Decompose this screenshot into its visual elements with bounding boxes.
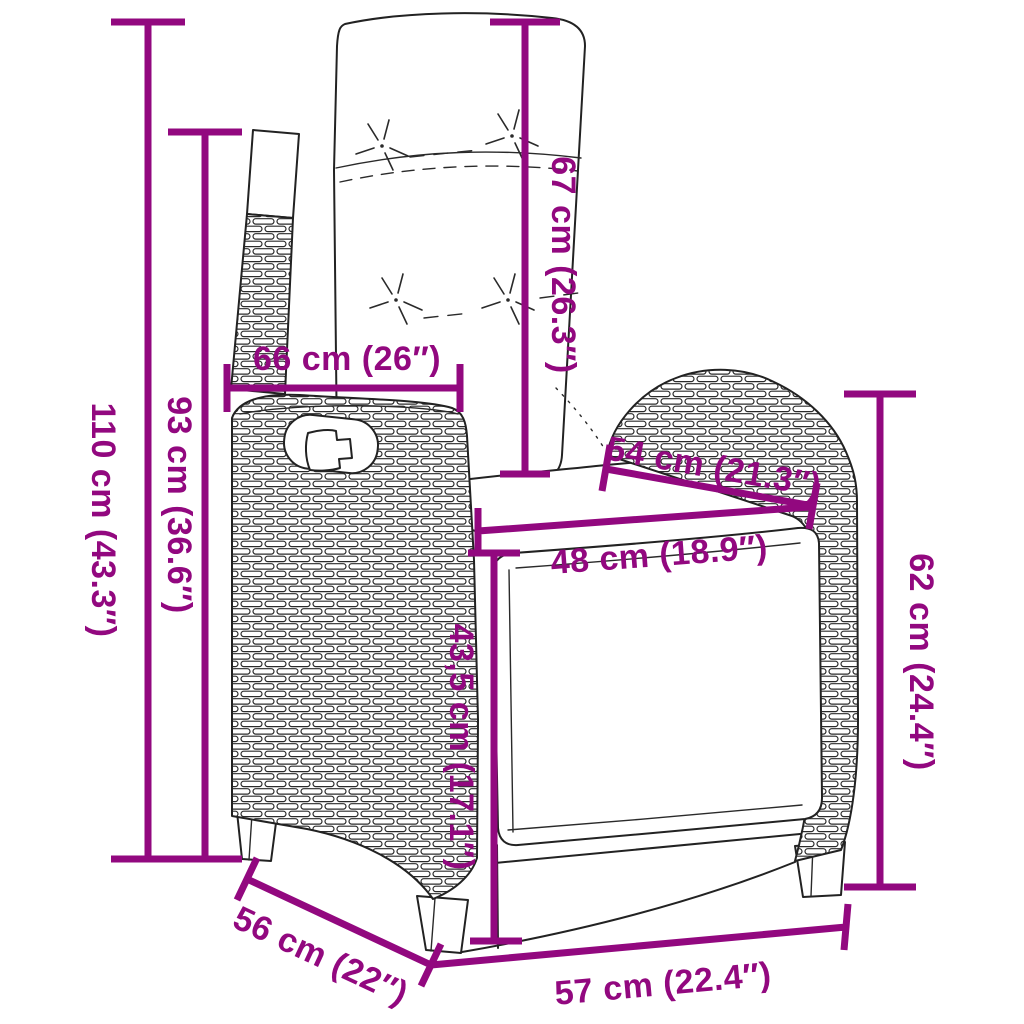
dim-backrest-height: 93 cm (36.6″) bbox=[160, 132, 242, 859]
dim-total-height-label: 110 cm (43.3″) bbox=[84, 403, 122, 638]
dim-side-height-label: 62 cm (24.4″) bbox=[902, 553, 940, 770]
dim-seat-depth: 56 cm (22″) bbox=[227, 858, 441, 1013]
footrest bbox=[462, 528, 822, 952]
dim-backrest-height-label: 93 cm (36.6″) bbox=[160, 396, 198, 613]
dim-front-width-label: 57 cm (22.4″) bbox=[553, 955, 773, 1013]
dim-backrest-width-label: 66 cm (26″) bbox=[253, 340, 441, 378]
front-left-leg bbox=[417, 896, 468, 953]
dim-back-cushion-length-label: 67 cm (26.3″) bbox=[544, 156, 582, 373]
left-armrest bbox=[232, 395, 478, 899]
diagram-canvas: 110 cm (43.3″) 93 cm (36.6″) 66 cm (26″)… bbox=[0, 0, 1024, 1024]
dimension-diagram: 110 cm (43.3″) 93 cm (36.6″) 66 cm (26″)… bbox=[0, 0, 1024, 1024]
dim-footrest-height-label: 43,5 cm (17.1″) bbox=[442, 624, 480, 871]
